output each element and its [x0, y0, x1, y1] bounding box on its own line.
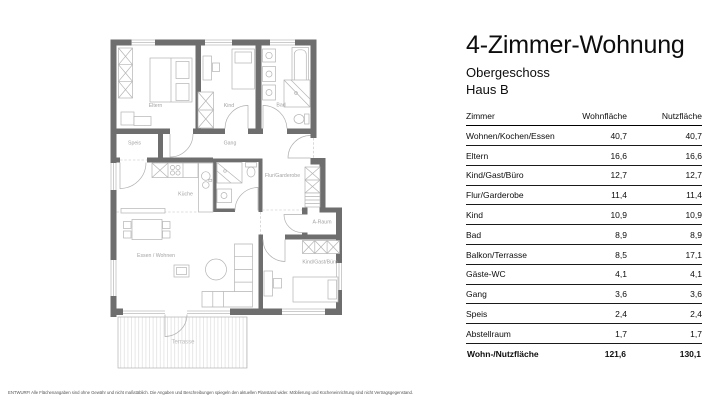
disclaimer-text: ENTWURF! Alle Flächenangaben sind ohne G… [8, 390, 458, 395]
building-subtitle: Haus B [466, 81, 702, 98]
furniture-flur [305, 167, 320, 207]
table-row: Wohnen/Kochen/Essen 40,7 40,7 [466, 126, 702, 146]
table-row: Bad 8,9 8,9 [466, 225, 702, 245]
area-table: Zimmer Wohnfläche Nutzfläche Wohnen/Koch… [466, 111, 702, 360]
nutzflaeche-cell: 2,4 [627, 304, 702, 324]
table-row: Speis 2,4 2,4 [466, 304, 702, 324]
fixtures-gaeste-wc [217, 163, 257, 203]
door-bad [263, 105, 287, 128]
room-name-cell: Kind/Gast/Büro [466, 165, 565, 185]
label-a-raum: A-Raum [312, 220, 331, 226]
nutzflaeche-cell: 40,7 [627, 126, 702, 146]
wohnflaeche-cell: 12,7 [565, 165, 627, 185]
furniture-kind [198, 49, 255, 128]
door-eltern [170, 134, 193, 157]
nutzflaeche-cell: 11,4 [627, 185, 702, 205]
label-bad: Bad [276, 103, 285, 109]
label-flur: Flur/Garderobe [265, 173, 300, 179]
column-zimmer: Zimmer [466, 111, 565, 126]
room-name-cell: Wohnen/Kochen/Essen [466, 126, 565, 146]
label-kgb: Kind/Gast/Büro [302, 260, 337, 266]
total-wohnflaeche: 121,6 [565, 343, 627, 360]
room-name-cell: Abstellraum [466, 324, 565, 344]
wohnflaeche-cell: 3,6 [565, 284, 627, 304]
label-wohnen: Essen / Wohnen [137, 253, 175, 259]
door-speis [120, 163, 146, 189]
glass-front-terrace [123, 311, 230, 314]
nutzflaeche-cell: 8,9 [627, 225, 702, 245]
area-table-body: Wohnen/Kochen/Essen 40,7 40,7 Eltern 16,… [466, 126, 702, 344]
table-row: Kind/Gast/Büro 12,7 12,7 [466, 165, 702, 185]
table-row: Gäste-WC 4,1 4,1 [466, 264, 702, 284]
table-row: Balkon/Terrasse 8,5 17,1 [466, 245, 702, 265]
window-kueche [111, 163, 117, 190]
window-kind [205, 40, 232, 46]
fixtures-bad [263, 48, 311, 125]
column-wohnflaeche: Wohnfläche [565, 111, 627, 126]
floor-plan: Eltern Kind Bad Speis Gang Küche Flur/Ga… [95, 30, 365, 375]
nutzflaeche-cell: 16,6 [627, 146, 702, 166]
total-label: Wohn-/Nutzfläche [466, 343, 565, 360]
door-a-raum [284, 215, 302, 233]
nutzflaeche-cell: 1,7 [627, 324, 702, 344]
wohnflaeche-cell: 16,6 [565, 146, 627, 166]
info-panel: 4-Zimmer-Wohnung Obergeschoss Haus B Zim… [466, 33, 702, 360]
table-row: Flur/Garderobe 11,4 11,4 [466, 185, 702, 205]
floor-subtitle: Obergeschoss [466, 64, 702, 81]
wohnflaeche-cell: 4,1 [565, 264, 627, 284]
label-kueche: Küche [178, 192, 193, 198]
floor-plan-svg: Eltern Kind Bad Speis Gang Küche Flur/Ga… [95, 30, 365, 375]
table-total-row: Wohn-/Nutzfläche 121,6 130,1 [466, 343, 702, 360]
window-wohnen [111, 260, 117, 296]
door-entry [288, 136, 311, 159]
wohnflaeche-cell: 11,4 [565, 185, 627, 205]
room-name-cell: Gäste-WC [466, 264, 565, 284]
furniture-kgb [264, 241, 340, 303]
label-terrasse: Terrasse [171, 340, 195, 346]
room-name-cell: Eltern [466, 146, 565, 166]
window-bad [270, 40, 295, 46]
table-header-row: Zimmer Wohnfläche Nutzfläche [466, 111, 702, 126]
door-gaeste-wc [235, 188, 258, 211]
total-nutzflaeche: 130,1 [627, 343, 702, 360]
furniture-kueche [152, 163, 213, 212]
table-row: Eltern 16,6 16,6 [466, 146, 702, 166]
label-gang: Gang [224, 141, 237, 147]
window-kgb-bottom [282, 309, 325, 316]
column-nutzflaeche: Nutzfläche [627, 111, 702, 126]
nutzflaeche-cell: 10,9 [627, 205, 702, 225]
room-name-cell: Flur/Garderobe [466, 185, 565, 205]
room-name-cell: Balkon/Terrasse [466, 245, 565, 265]
wohnflaeche-cell: 2,4 [565, 304, 627, 324]
nutzflaeche-cell: 12,7 [627, 165, 702, 185]
wohnflaeche-cell: 1,7 [565, 324, 627, 344]
room-name-cell: Gang [466, 284, 565, 304]
wohnflaeche-cell: 8,5 [565, 245, 627, 265]
table-row: Kind 10,9 10,9 [466, 205, 702, 225]
page-title: 4-Zimmer-Wohnung [466, 33, 702, 58]
room-name-cell: Bad [466, 225, 565, 245]
wohnflaeche-cell: 40,7 [565, 126, 627, 146]
room-name-cell: Kind [466, 205, 565, 225]
wohnflaeche-cell: 10,9 [565, 205, 627, 225]
table-row: Gang 3,6 3,6 [466, 284, 702, 304]
wohnflaeche-cell: 8,9 [565, 225, 627, 245]
label-eltern: Eltern [149, 103, 163, 109]
furniture-eltern [119, 48, 193, 126]
nutzflaeche-cell: 4,1 [627, 264, 702, 284]
table-row: Abstellraum 1,7 1,7 [466, 324, 702, 344]
label-kind: Kind [224, 103, 234, 109]
label-speis: Speis [128, 141, 141, 147]
nutzflaeche-cell: 3,6 [627, 284, 702, 304]
door-kgb [263, 240, 285, 262]
room-name-cell: Speis [466, 304, 565, 324]
nutzflaeche-cell: 17,1 [627, 245, 702, 265]
window-eltern [132, 40, 155, 46]
